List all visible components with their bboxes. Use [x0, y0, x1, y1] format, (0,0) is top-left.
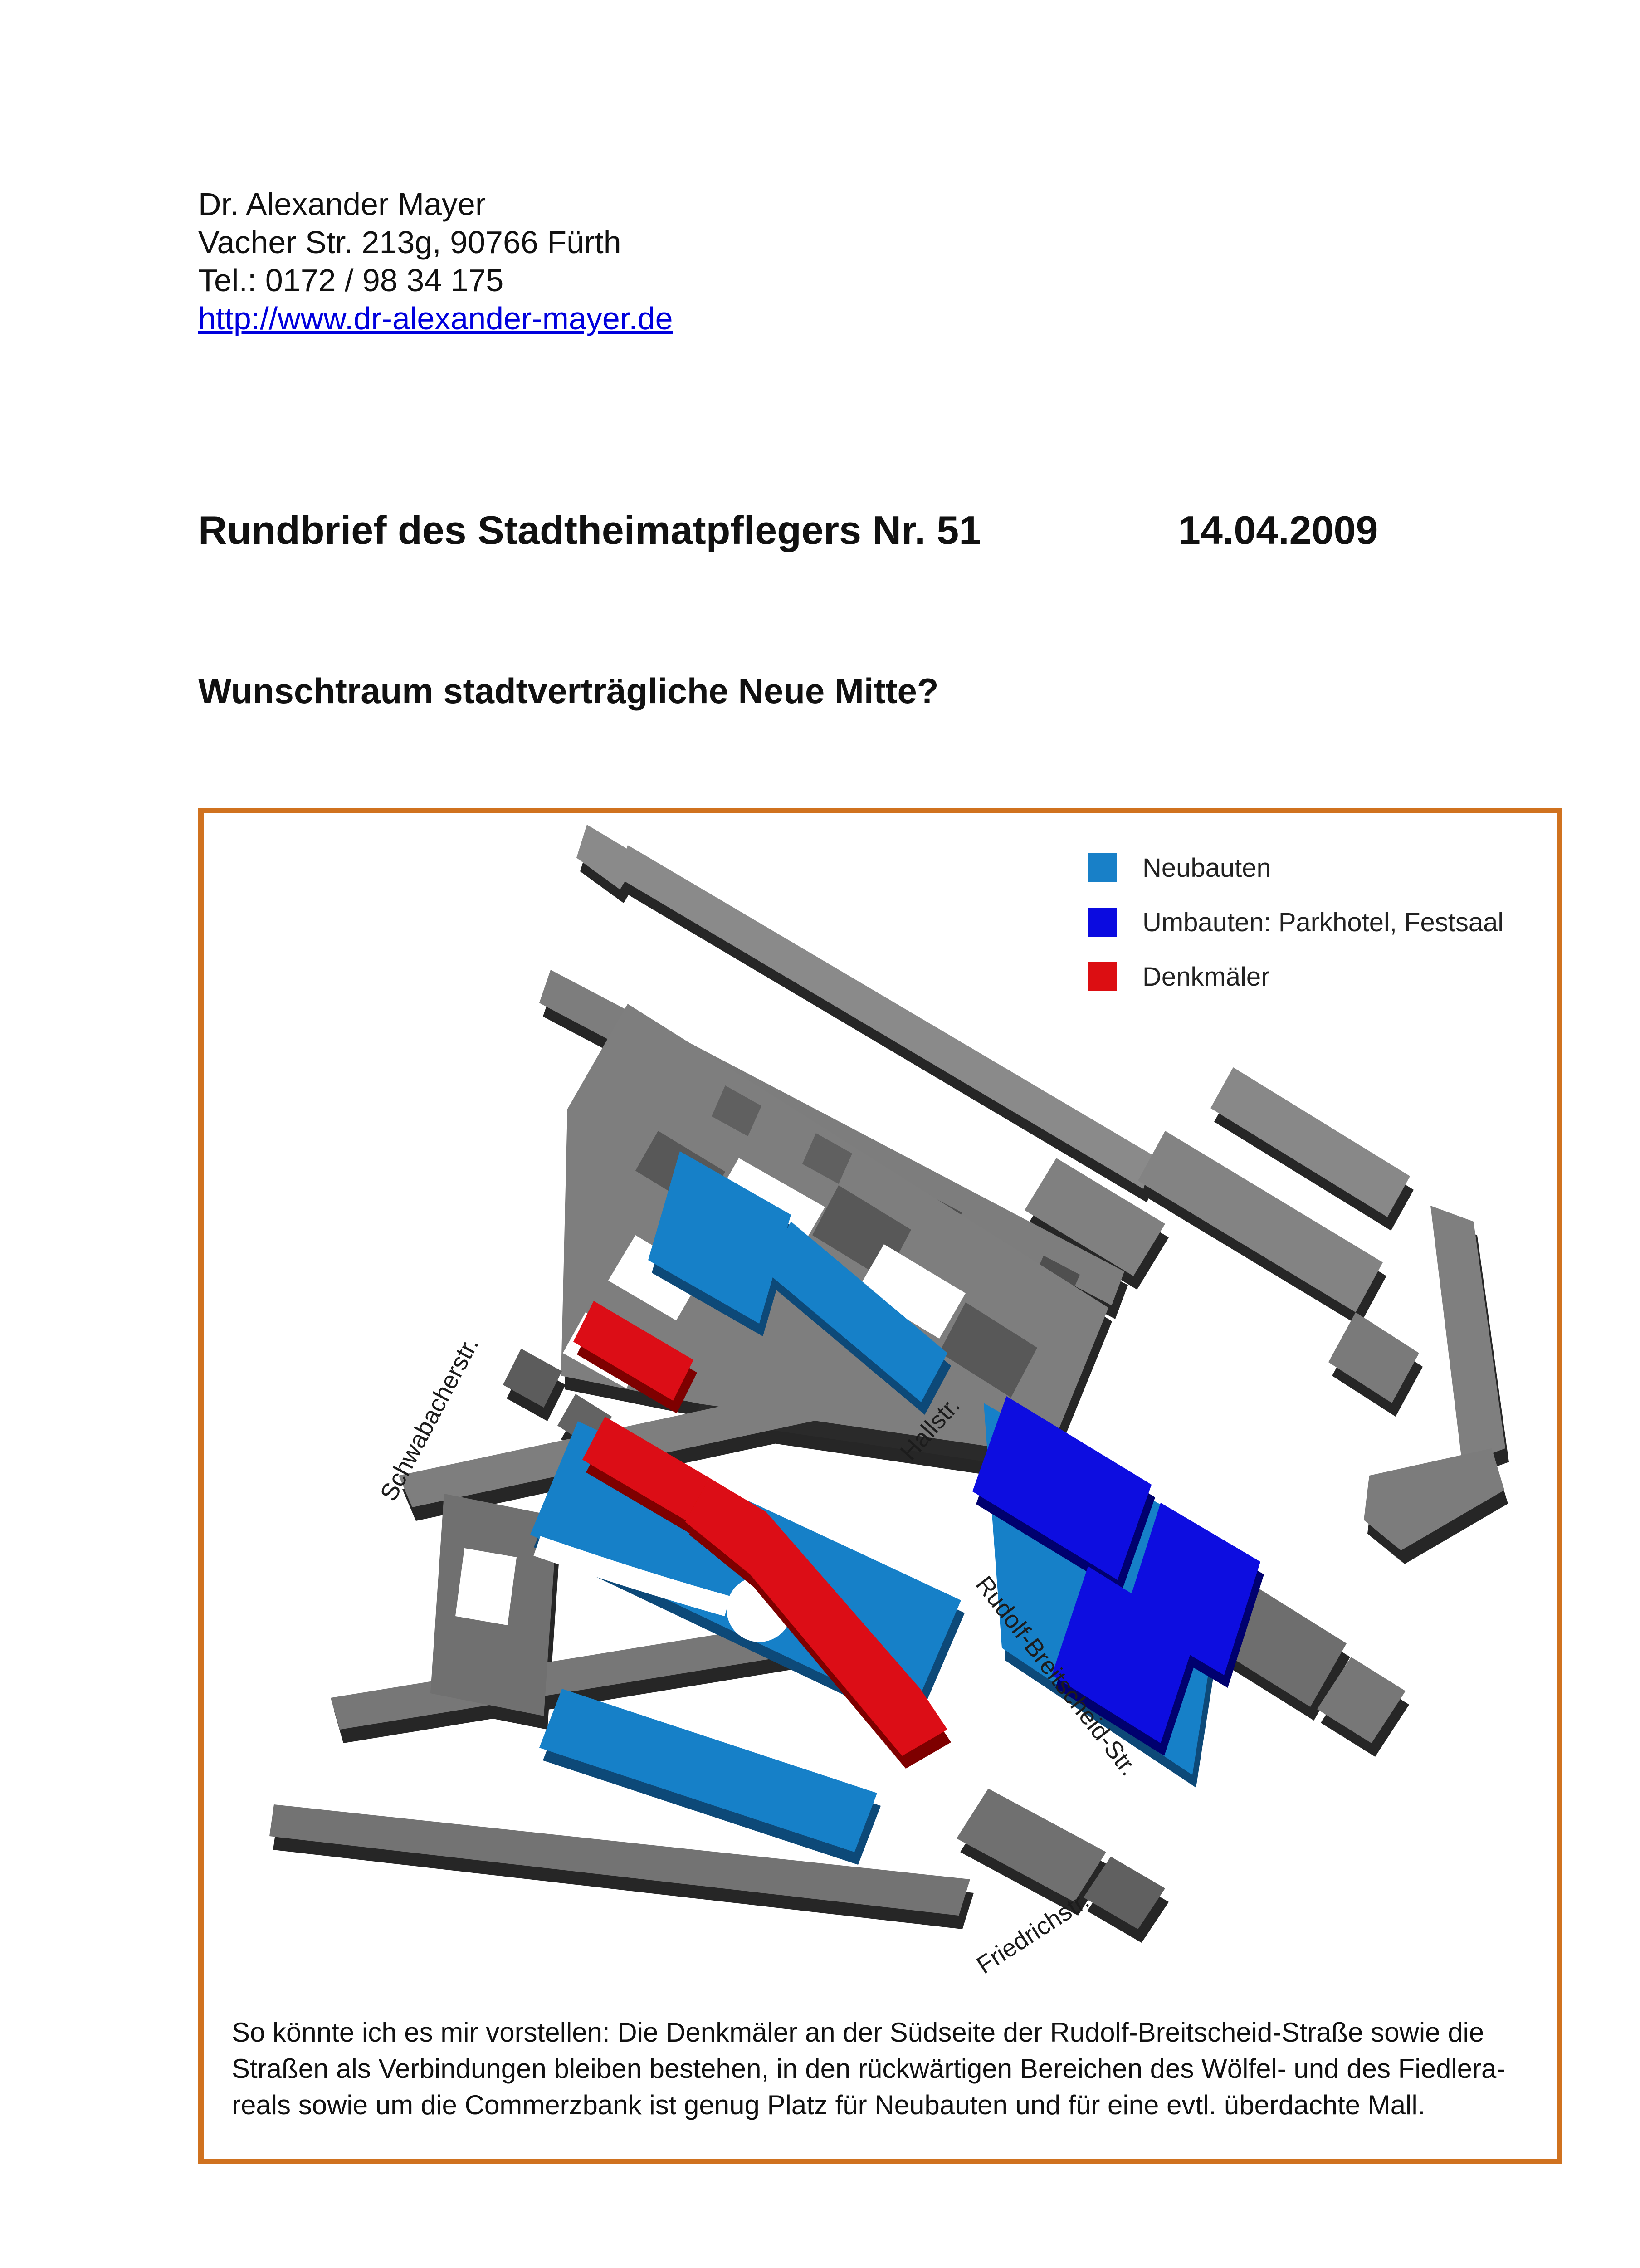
legend-item-label: Denkmäler	[1142, 962, 1269, 992]
neubauten-color-swatch	[1088, 853, 1117, 882]
street-label-friedrichstr: Friedrichstr.	[972, 1887, 1094, 1979]
umbauten-color-swatch	[1088, 908, 1117, 937]
website-link[interactable]: http://www.dr-alexander-mayer.de	[198, 301, 673, 336]
legend-item-denkmaeler: Denkmäler	[1088, 962, 1269, 991]
page: { "header": { "name": "Dr. Alexander May…	[0, 0, 1640, 2268]
legend-item-umbauten: Umbauten: Parkhotel, Festsaal	[1088, 908, 1503, 937]
legend-item-label: Neubauten	[1142, 853, 1271, 883]
denkmaeler-color-swatch	[1088, 962, 1117, 991]
legend-item-neubauten: Neubauten	[1088, 853, 1271, 882]
legend-item-label: Umbauten: Parkhotel, Festsaal	[1142, 907, 1503, 938]
sender-name: Dr. Alexander Mayer	[198, 185, 673, 223]
sender-phone: Tel.: 0172 / 98 34 175	[198, 261, 673, 299]
figure-caption: So könnte ich es mir vorstellen: Die Den…	[232, 2014, 1552, 2123]
map-figure: Schwabacherstr. Hallstr. Rudolf-Breitsch…	[198, 808, 1562, 2164]
caption-line: reals sowie um die Commerzbank ist genug…	[232, 2087, 1552, 2123]
page-title: Rundbrief des Stadtheimatpflegers Nr. 51	[198, 507, 981, 553]
title-row: Rundbrief des Stadtheimatpflegers Nr. 51…	[0, 507, 1640, 562]
sender-address: Vacher Str. 213g, 90766 Fürth	[198, 223, 673, 261]
city-model-map: Schwabacherstr. Hallstr. Rudolf-Breitsch…	[204, 813, 1557, 2159]
caption-line: So könnte ich es mir vorstellen: Die Den…	[232, 2014, 1552, 2051]
article-subtitle: Wunschtraum stadtverträgliche Neue Mitte…	[198, 670, 939, 712]
page-date: 14.04.2009	[1178, 507, 1378, 553]
caption-line: Straßen als Verbindungen bleiben bestehe…	[232, 2051, 1552, 2087]
sender-block: Dr. Alexander Mayer Vacher Str. 213g, 90…	[198, 185, 673, 337]
